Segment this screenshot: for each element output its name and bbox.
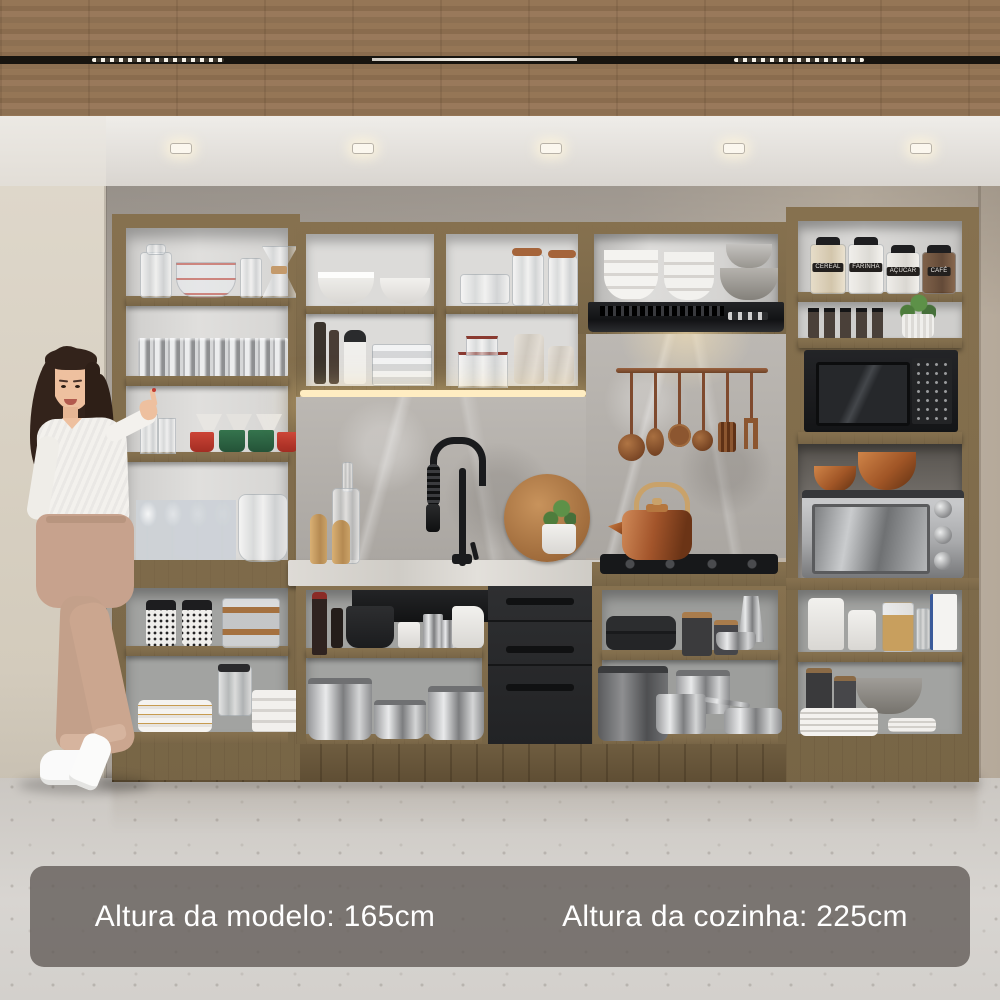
oil-bottle — [314, 322, 326, 384]
recessed-spotlight — [352, 143, 374, 154]
succulent-pot — [542, 524, 576, 554]
right-cabinet-band — [786, 578, 979, 590]
drawer-seam — [488, 620, 592, 622]
drawer-handle — [506, 598, 574, 605]
microwave-keypad — [912, 358, 952, 424]
model-waistband — [46, 516, 126, 523]
caption-model-height: Altura da modelo: 165cm — [30, 900, 500, 934]
model-nail-polish — [152, 388, 156, 392]
track-light-strip-left — [92, 58, 224, 62]
pantry-canister-cafe: CAFÉ — [922, 252, 956, 294]
copper-jar-lid — [548, 250, 576, 258]
dark-canister — [682, 612, 712, 656]
small-plate-stack — [888, 718, 936, 732]
canister-label: CAFÉ — [928, 267, 951, 276]
track-light-bar — [372, 58, 577, 61]
white-bowl-stack — [604, 250, 658, 300]
glass-wood-container — [222, 598, 280, 648]
white-canister — [398, 622, 420, 648]
floor-reflection — [112, 784, 978, 832]
drawer-handle — [506, 684, 574, 691]
plant-pot — [902, 314, 934, 338]
glass-jar-lid — [146, 244, 166, 255]
coffee-maker-wood-collar — [271, 266, 287, 274]
backsplash-hood-glow — [600, 334, 772, 424]
grain-jar — [882, 602, 914, 652]
spoon-utensil — [654, 373, 657, 433]
canister-label: FARINHA — [849, 263, 882, 272]
caption-kitchen-height: Altura da cozinha: 225cm — [500, 900, 970, 934]
recessed-spotlight — [540, 143, 562, 154]
shelf — [798, 652, 962, 662]
copper-lid-jar — [548, 256, 578, 306]
pantry-canister-farinha: FARINHA — [848, 244, 884, 294]
small-ladle-head — [692, 430, 713, 451]
stock-pot — [308, 678, 372, 740]
skimmer-head — [668, 424, 691, 447]
white-canister — [848, 610, 876, 650]
marble-canister — [548, 346, 574, 384]
storage-jar-lid — [218, 664, 250, 672]
recessed-spotlight — [723, 143, 745, 154]
glass-jar — [240, 258, 262, 298]
shelf — [798, 432, 962, 444]
spice-jar-caps — [808, 308, 886, 312]
red-lid-container-small — [466, 336, 498, 356]
canister-lid — [891, 245, 915, 253]
kitchen-product-photo: CEREAL FARINHA AÇÚCAR CAFÉ — [0, 0, 1000, 1000]
shelf — [798, 338, 962, 348]
spatula-utensil — [726, 373, 729, 425]
model — [0, 330, 200, 800]
oven-knob — [934, 500, 952, 518]
recessed-spotlight — [170, 143, 192, 154]
ladle-head — [618, 434, 645, 461]
oven-knob — [934, 526, 952, 544]
model-eye — [61, 385, 66, 388]
pepper-mill — [310, 514, 327, 564]
soy-bottle — [331, 608, 343, 648]
glass-pitcher — [238, 494, 288, 562]
green-mug — [219, 430, 245, 452]
canister-lid — [927, 245, 951, 253]
cocktail-shaker — [344, 330, 366, 384]
canister-lid — [816, 237, 840, 245]
spatula-head — [718, 422, 736, 452]
white-box — [930, 594, 957, 650]
spice-jar-row — [808, 310, 886, 338]
marble-canister — [514, 334, 544, 384]
faucet-spray-head — [426, 504, 440, 532]
kettle-body — [622, 510, 692, 560]
butter-dish — [460, 274, 510, 304]
drawer-handle — [506, 646, 574, 653]
oven-window — [812, 504, 930, 574]
drawer-seam — [488, 664, 592, 666]
square-bowl-stack — [252, 690, 302, 732]
track-light-strip-right — [734, 58, 864, 62]
ladle-utensil — [630, 373, 633, 437]
glass-container-stack — [372, 344, 432, 386]
fork-head — [744, 418, 758, 449]
copper-jar-lid — [512, 248, 542, 256]
red-mug — [277, 432, 298, 452]
microwave-window — [816, 362, 910, 426]
white-ceiling — [0, 116, 1000, 186]
casserole — [724, 708, 782, 734]
utensil-rail — [616, 368, 768, 373]
shelf — [306, 306, 434, 314]
glass-jar — [140, 252, 172, 298]
black-pot — [346, 606, 394, 648]
gas-cooktop — [600, 554, 778, 574]
recessed-spotlight — [910, 143, 932, 154]
small-pot — [716, 632, 756, 650]
storage-jar — [218, 666, 252, 716]
caption-bar: Altura da modelo: 165cm Altura da cozinh… — [30, 866, 970, 967]
stock-pot — [428, 686, 484, 740]
pantry-canister-acucar: AÇÚCAR — [886, 252, 920, 294]
hood-buttons — [728, 312, 768, 320]
faucet-riser — [459, 468, 466, 566]
white-pitcher — [452, 606, 484, 648]
white-bowl-stack — [664, 252, 714, 300]
black-roaster-stack — [606, 616, 676, 650]
canister-lid — [854, 237, 878, 245]
skimmer-utensil — [678, 373, 681, 429]
shelf — [306, 648, 482, 658]
shelf — [446, 306, 578, 314]
kettle-lid — [646, 504, 668, 512]
under-cabinet-led-strip — [300, 390, 586, 397]
canister-label: AÇÚCAR — [887, 267, 920, 276]
white-canister — [808, 598, 844, 650]
wine-bottle — [312, 592, 327, 655]
model-eye — [75, 385, 80, 388]
faucet-spring-coil — [427, 464, 440, 506]
small-ladle-utensil — [702, 373, 705, 435]
hood-vent-grille — [600, 306, 724, 316]
pantry-canister-cereal: CEREAL — [810, 244, 846, 294]
oven-knob — [934, 552, 952, 570]
vinegar-bottle — [329, 330, 339, 384]
saucepan — [656, 694, 706, 734]
canister-label: CEREAL — [812, 263, 843, 272]
faucet-base — [452, 554, 472, 564]
fork-utensil — [750, 373, 753, 421]
steel-cup — [423, 614, 443, 648]
spoon-head — [646, 428, 664, 456]
green-mug — [248, 430, 274, 452]
copper-lid-jar — [512, 254, 544, 306]
salt-shaker — [916, 608, 930, 650]
glass-bowl-stack — [176, 262, 236, 298]
stock-pot — [374, 700, 426, 739]
kettle-knob — [652, 498, 662, 505]
pepper-mill — [332, 520, 350, 564]
red-lid-container — [458, 352, 508, 388]
white-plate-stack — [800, 708, 878, 736]
model-pants-hip — [36, 514, 134, 608]
